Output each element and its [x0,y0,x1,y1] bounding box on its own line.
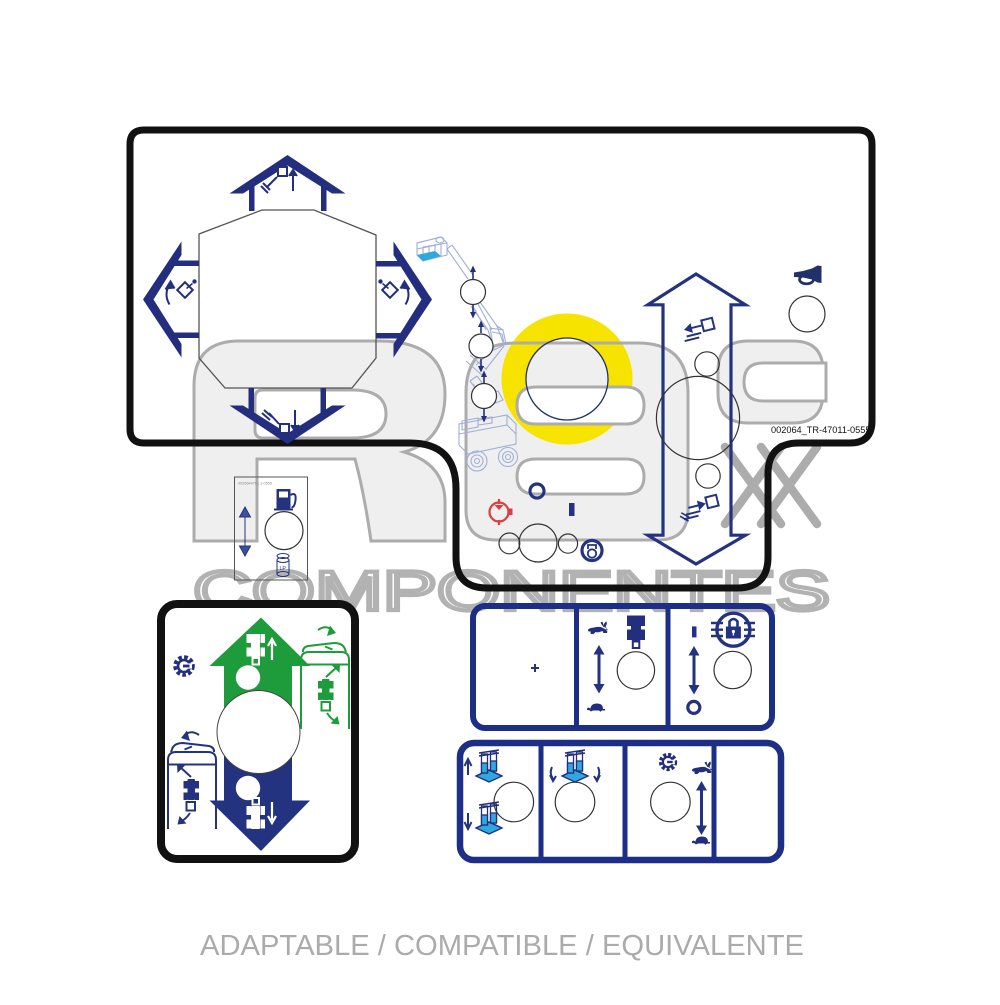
svg-text:ADAPTABLE / COMPATIBLE / EQUIV: ADAPTABLE / COMPATIBLE / EQUIVALENTE [200,930,804,962]
svg-text:LP: LP [280,566,287,572]
svg-text:0026644761 1-0555: 0026644761 1-0555 [238,482,272,486]
svg-text:002064_TR-47011-0555: 002064_TR-47011-0555 [771,425,870,435]
